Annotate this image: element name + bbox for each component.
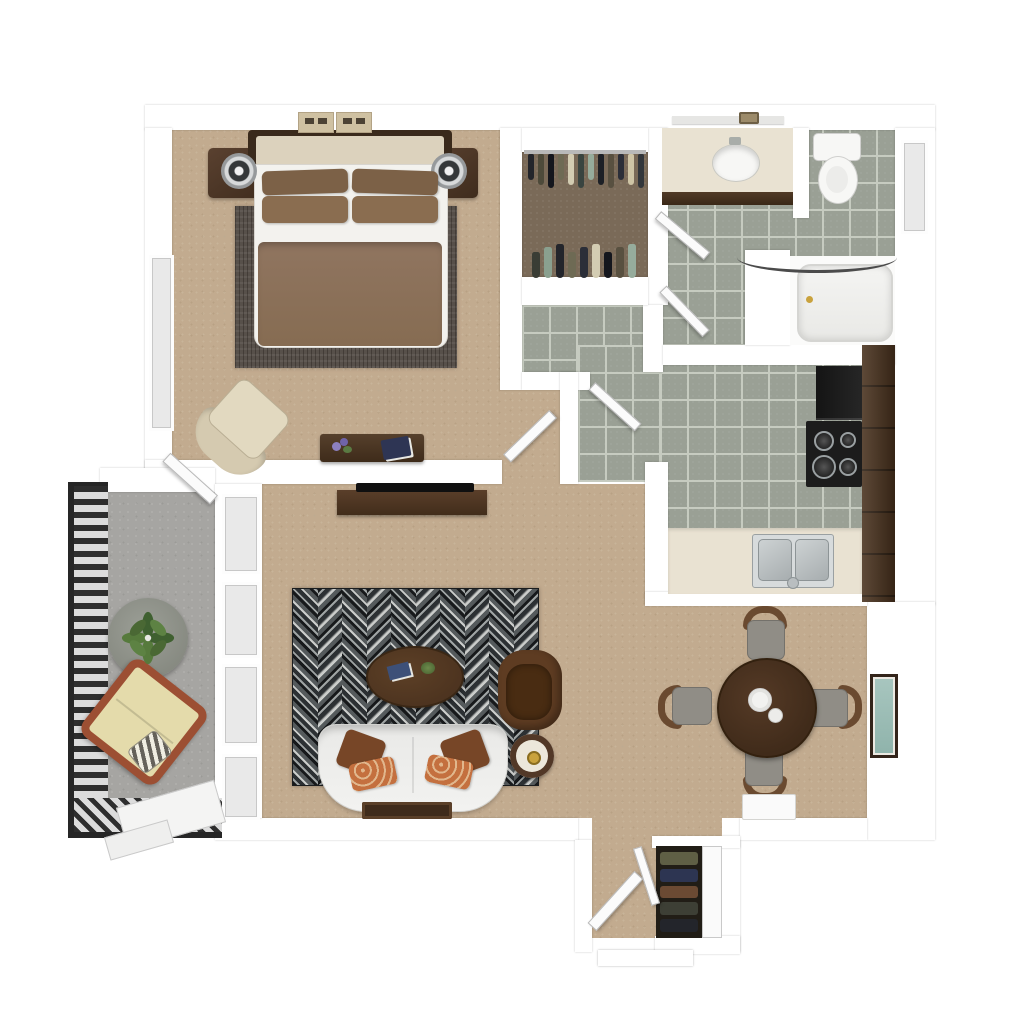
bedroom-window [149, 255, 174, 431]
chair-seat [747, 620, 785, 660]
garment [556, 244, 564, 278]
wall-closet-bottom [522, 277, 648, 305]
bathtub-drain [806, 296, 813, 303]
refrigerator [816, 366, 862, 420]
side-table [510, 734, 554, 778]
coffee-table [366, 646, 464, 708]
dinner-plate [748, 688, 772, 712]
garment [660, 852, 698, 865]
bed-pillow-4 [352, 196, 438, 223]
wall-bedroom-closet-divider [500, 128, 522, 390]
wall-linen-south [522, 372, 590, 390]
wall-art-mark [305, 118, 314, 124]
shower-rod [737, 242, 897, 273]
living-window-1 [222, 494, 260, 574]
vanity-cabinet-front [662, 192, 793, 205]
garment [532, 252, 540, 278]
bathroom-window [901, 140, 928, 234]
tv [356, 483, 474, 492]
entry-closet-coats [660, 850, 700, 934]
wall-vanity-divider [793, 128, 809, 218]
rug-column [293, 589, 318, 785]
floor-tray [362, 802, 452, 819]
living-window-4 [222, 754, 260, 820]
wall-art-left [298, 112, 334, 133]
garment [604, 252, 612, 278]
wall-south-east [740, 818, 867, 840]
garment [616, 247, 624, 278]
garment [660, 869, 698, 882]
garment [638, 154, 644, 188]
wall-closet-shelf [522, 128, 648, 152]
vanity-faucet [729, 137, 741, 145]
entry-closet-door [702, 846, 722, 938]
wall-art-mark [343, 118, 352, 124]
toilet-bowl [818, 156, 858, 204]
garment [628, 154, 634, 185]
chair-seat [672, 687, 712, 725]
wall-kitchen-north [663, 345, 895, 365]
garment [578, 154, 584, 188]
armchair-seat [506, 664, 552, 720]
garment [660, 919, 698, 932]
wall-art-right [336, 112, 372, 133]
dining-chair-west [658, 684, 712, 730]
tv-console [337, 490, 487, 515]
wall-art-mark [356, 118, 365, 124]
garment [558, 154, 564, 180]
garment [598, 154, 604, 185]
flower-leaf [343, 446, 352, 453]
wall-entry-left [575, 840, 592, 952]
sink-basin-left [758, 539, 792, 581]
lamp-left [221, 153, 257, 189]
garment [538, 154, 544, 185]
vanity-mirror [672, 116, 784, 124]
wall-counter-front [645, 592, 867, 606]
burner [840, 432, 856, 448]
garment [592, 244, 600, 278]
garment [660, 902, 698, 915]
flower [340, 438, 348, 446]
dining-wall-art [870, 674, 898, 758]
coffee-table-plant [421, 662, 435, 674]
closet-garments-top [526, 154, 646, 190]
sink-basin-right [795, 539, 829, 581]
garment [544, 247, 552, 278]
burner [812, 455, 836, 479]
bed-headboard-cushion [256, 136, 444, 166]
toilet-seat [826, 166, 848, 193]
door-mat [742, 794, 796, 820]
front-step [598, 950, 693, 966]
bed-pillow-2 [352, 169, 439, 196]
range [806, 421, 862, 487]
garment [580, 247, 588, 278]
garment [628, 244, 636, 278]
garment [568, 252, 576, 278]
bed-pillow-3 [262, 196, 348, 223]
cup [768, 708, 783, 723]
wall-south-west [215, 818, 578, 840]
sink-faucet [787, 577, 799, 589]
wall-hall-west [560, 372, 578, 484]
garment [660, 886, 698, 899]
wall-north [145, 105, 935, 130]
garment [528, 154, 534, 180]
sofa-seam [412, 737, 414, 793]
garment [548, 154, 554, 188]
living-window-2 [222, 582, 260, 658]
wall-kitchen-west [645, 462, 668, 602]
dining-table [717, 658, 817, 758]
bathtub-basin [797, 264, 893, 342]
living-window-3 [222, 664, 260, 746]
closet-garments-bottom [530, 248, 642, 278]
garment [588, 154, 594, 180]
potted-plant [119, 609, 177, 667]
bed-pillow-1 [262, 169, 349, 196]
burner [839, 458, 857, 476]
floor-plan [0, 0, 1024, 1024]
garment [608, 154, 614, 188]
leather-armchair [498, 650, 562, 730]
dining-chair-north [742, 606, 788, 660]
garment [618, 154, 624, 180]
vanity-sink [712, 144, 760, 182]
wall-linen-east [643, 305, 663, 372]
flower-vase [330, 438, 354, 458]
bed-duvet [258, 242, 442, 346]
kitchen-cabinets [862, 345, 895, 602]
balcony-railing-left [68, 482, 108, 822]
burner [814, 431, 834, 451]
garment [568, 154, 574, 185]
kitchen-sink [752, 534, 834, 588]
wall-art-mark [318, 118, 327, 124]
side-table-lamp [527, 751, 541, 765]
mirror-fixture [739, 112, 759, 124]
